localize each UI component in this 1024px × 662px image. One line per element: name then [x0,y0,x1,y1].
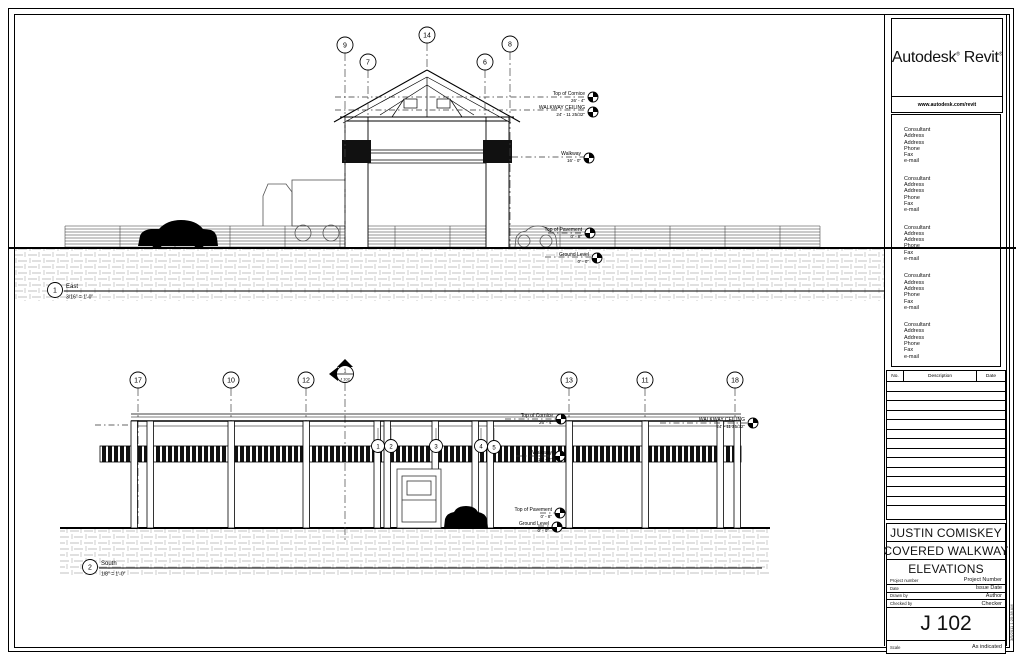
field-value: Issue Date [976,585,1002,591]
field-value: Author [986,593,1002,599]
website-url: www.autodesk.com/revit [918,102,976,108]
revision-row [887,477,1005,487]
ground-line-east [8,247,1016,249]
brand-autodesk: Autodesk [892,49,956,66]
field-label: Drawn by [890,593,908,598]
consultant-block: Consultant Address Address Phone Fax e-m… [904,176,1000,214]
scale-row: Scale As indicated [886,641,1006,654]
scale-label: Scale [890,645,900,650]
field-date: Date Issue Date [887,585,1005,593]
revision-row [887,430,1005,440]
revision-col-date: Date [977,371,1005,381]
project-fields: Project number Project Number Date Issue… [886,577,1006,608]
title-block: Autodesk® Revit® www.autodesk.com/revit … [884,14,1007,646]
consultant-block: Consultant Address Address Phone Fax e-m… [904,273,1000,311]
consultant-block: Consultant Address Address Phone Fax e-m… [904,225,1000,263]
drawing-sheet: 9 7 14 6 8 Top of Cornice [0,0,1024,662]
registered-mark: ® [956,52,959,58]
field-value: Project Number [964,577,1002,583]
revision-row [887,439,1005,449]
revision-row [887,382,1005,392]
field-label: Project number [890,578,918,583]
field-label: Date [890,586,899,591]
registered-mark: ® [999,52,1002,58]
revision-col-description: Description [904,371,977,381]
revision-row [887,458,1005,468]
brand-revit: Revit [964,49,999,66]
consultant-box: Consultant Address Address Phone Fax e-m… [891,114,1001,367]
autodesk-revit-logo: Autodesk® Revit® [892,49,1002,67]
sheet-number: J 102 [920,612,971,636]
project-name: COVERED WALKWAY [887,542,1005,560]
field-drawn-by: Drawn by Author [887,593,1005,601]
project-name-box: JUSTIN COMISKEY COVERED WALKWAY ELEVATIO… [886,523,1006,579]
revision-row [887,401,1005,411]
consultant-line: e-mail [904,354,1000,360]
website-box: www.autodesk.com/revit [891,96,1003,113]
revision-row [887,497,1005,507]
field-label: Checked by [890,601,912,606]
revision-header: No. Description Date [887,371,1005,382]
plot-stamp: 3/5/2011 1:25:38 AM [1009,551,1014,641]
revision-row [887,449,1005,459]
consultant-line: e-mail [904,305,1000,311]
revision-table: No. Description Date [886,370,1006,520]
revision-row [887,392,1005,402]
field-value: Checker [982,601,1002,607]
sheet-title: ELEVATIONS [887,560,1005,578]
consultant-block: Consultant Address Address Phone Fax e-m… [904,127,1000,165]
revision-col-no: No. [887,371,904,381]
consultant-block: Consultant Address Address Phone Fax e-m… [904,322,1000,360]
field-project-number: Project number Project Number [887,577,1005,585]
logo-box: Autodesk® Revit® [891,18,1003,98]
revision-row [887,468,1005,478]
revision-row [887,420,1005,430]
revision-row [887,411,1005,421]
consultant-line: e-mail [904,256,1000,262]
consultant-line: e-mail [904,207,1000,213]
scale-value: As indicated [972,644,1002,650]
revision-row [887,487,1005,497]
sheet-border-inner [14,14,1010,648]
consultant-line: e-mail [904,158,1000,164]
sheet-number-box: J 102 [886,608,1006,641]
client-name: JUSTIN COMISKEY [887,524,1005,542]
